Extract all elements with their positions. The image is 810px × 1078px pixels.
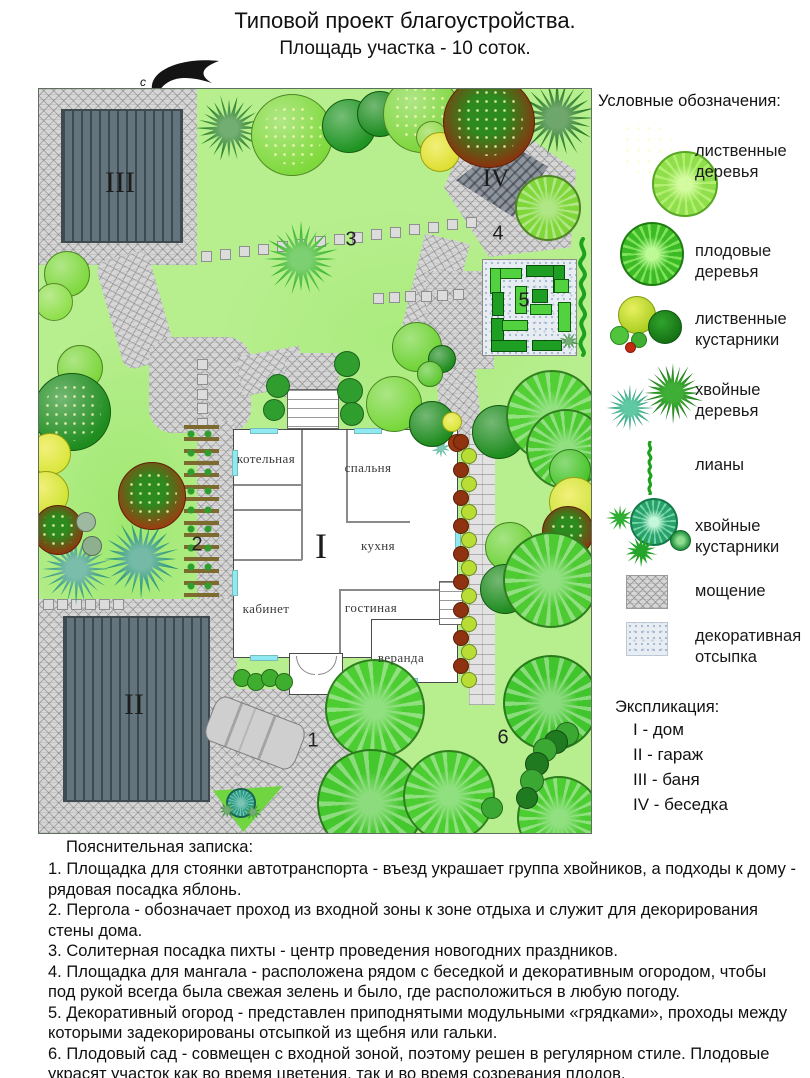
- legend-row-gravel: декоративная отсыпка: [598, 616, 810, 674]
- yellow-shrub: [38, 433, 71, 475]
- page-title: Типовой проект благоустройства.: [0, 8, 810, 34]
- explication: Экспликация: I - дом II - гараж III - ба…: [615, 698, 810, 817]
- conifer-shrub-icon: [670, 530, 691, 551]
- interior-wall: [234, 484, 302, 486]
- compass-label: с: [140, 75, 146, 89]
- label-living-room: гостиная: [345, 600, 397, 616]
- garden-bed: [532, 340, 562, 351]
- label-fir: 3: [345, 229, 356, 252]
- legend-row-deciduous-trees: лиственные деревья: [598, 113, 810, 203]
- deciduous-tree: [549, 449, 591, 491]
- label-kitchen: кухня: [361, 538, 395, 554]
- interior-wall: [339, 589, 341, 657]
- foliage-texture: [393, 88, 451, 143]
- deciduous-tree: [38, 283, 73, 321]
- garden-bed: [530, 304, 552, 315]
- fruit-tree-icon: [620, 222, 684, 286]
- legend-label: плодовые деревья: [695, 241, 810, 283]
- label-parking: 1: [307, 730, 318, 753]
- note-item: 6. Плодовый сад - совмещен с входной зон…: [48, 1044, 796, 1078]
- legend-label: хвойные кустарники: [695, 516, 810, 558]
- legend-label: лианы: [695, 455, 810, 476]
- door-swing: [318, 656, 337, 675]
- liana-icon: [640, 441, 660, 495]
- note-item: 1. Площадка для стоянки автотранспорта -…: [48, 859, 796, 900]
- door-swing: [296, 656, 315, 675]
- yellow-shrub: [38, 471, 69, 517]
- conifer-tree: [263, 221, 339, 297]
- shrub: [340, 402, 364, 426]
- garden-bed: [491, 340, 527, 352]
- interior-wall: [234, 559, 302, 561]
- garden-bed: [502, 320, 528, 331]
- interior-wall: [346, 430, 348, 522]
- stepping-stone: [315, 236, 326, 247]
- note-item: 5. Декоративный огород - представлен при…: [48, 1003, 796, 1044]
- shrub: [76, 512, 96, 532]
- note-item: 2. Пергола - обозначает проход из входно…: [48, 900, 796, 941]
- window: [250, 655, 278, 661]
- window: [354, 428, 382, 434]
- interior-wall: [234, 509, 302, 511]
- conifer-tree: [101, 519, 181, 599]
- fruit-tree: [403, 750, 495, 834]
- deciduous-tree: [357, 91, 403, 137]
- shrub-icon: [610, 326, 629, 345]
- label-bedroom: спальня: [345, 460, 392, 476]
- legend: Условные обозначения: лиственные деревья…: [598, 88, 810, 676]
- deciduous-tree: [251, 94, 333, 176]
- fruit-tree: [503, 655, 592, 751]
- label-bbq-area: 4: [492, 223, 503, 246]
- label-pergola: 2: [191, 534, 202, 557]
- foliage-texture: [127, 471, 177, 521]
- legend-row-paving: мощение: [598, 573, 810, 617]
- window: [390, 678, 418, 684]
- interior-wall: [301, 430, 303, 560]
- legend-row-conifer-trees: хвойные деревья: [598, 360, 810, 436]
- foliage-texture: [262, 105, 323, 166]
- legend-label: декоративная отсыпка: [695, 626, 810, 668]
- explication-item: III - баня: [633, 767, 810, 792]
- stepping-stone: [371, 229, 382, 240]
- explication-item: II - гараж: [633, 742, 810, 767]
- gravel-swatch: [626, 622, 668, 656]
- stepping-stone: [428, 222, 439, 233]
- label-house: I: [315, 525, 327, 567]
- explication-item: I - дом: [633, 717, 810, 742]
- note-item: 4. Площадка для мангала - расположена ря…: [48, 962, 796, 1003]
- deciduous-tree: [322, 99, 376, 153]
- window: [250, 428, 278, 434]
- deciduous-tree: [38, 373, 111, 451]
- label-garage: II: [124, 688, 144, 722]
- red-foliage-tree: [38, 505, 83, 555]
- stepping-stone: [258, 244, 269, 255]
- legend-label: хвойные деревья: [695, 380, 810, 422]
- shrub: [263, 399, 285, 421]
- legend-title: Условные обозначения:: [598, 92, 781, 111]
- stepping-stone: [447, 219, 458, 230]
- foliage-texture: [43, 383, 101, 441]
- shrub: [533, 738, 557, 762]
- fruit-tree: [506, 370, 592, 462]
- stepping-stone: [389, 292, 400, 303]
- garden-bed: [492, 292, 504, 316]
- garden-bed: [554, 279, 569, 293]
- stone-walk: [469, 429, 495, 705]
- stepping-stone: [390, 227, 401, 238]
- side-steps: [439, 581, 463, 625]
- shrub: [520, 769, 544, 793]
- legend-label: мощение: [695, 581, 810, 602]
- label-bath: III: [105, 166, 135, 200]
- legend-label: лиственные кустарники: [695, 309, 810, 351]
- garden-bed: [558, 302, 571, 332]
- window: [232, 570, 238, 596]
- legend-row-conifer-shrubs: хвойные кустарники: [598, 496, 810, 572]
- stepping-stone: [201, 251, 212, 262]
- red-foliage-tree: [542, 506, 592, 558]
- title-block: Типовой проект благоустройства. Площадь …: [0, 8, 810, 60]
- landscape-plan-page: Типовой проект благоустройства. Площадь …: [0, 0, 810, 1078]
- pergola: [184, 425, 219, 597]
- window: [455, 520, 461, 548]
- explication-title: Экспликация:: [615, 698, 810, 717]
- shrub: [516, 787, 538, 809]
- stepping-stone: [220, 249, 231, 260]
- shrub: [337, 378, 363, 404]
- foliage-texture: [549, 513, 587, 551]
- stepping-stone: [296, 239, 307, 250]
- yellow-shrub: [549, 477, 592, 527]
- conifer-tree: [195, 94, 263, 162]
- label-boiler-room: котельная: [237, 451, 295, 467]
- label-orchard: 6: [497, 727, 508, 750]
- stepping-stone: [239, 246, 250, 257]
- conifer-tree: [40, 533, 112, 605]
- liana-plant: [575, 237, 591, 357]
- legend-row-lianas: лианы: [598, 438, 810, 498]
- porch-steps: [287, 389, 339, 429]
- stepping-stone: [409, 224, 420, 235]
- fruit-tree: [517, 776, 592, 834]
- notes-title: Пояснительная записка:: [66, 838, 796, 857]
- red-shrub-icon: [625, 342, 636, 353]
- deciduous-tree: [57, 345, 103, 391]
- stepping-stone: [334, 234, 345, 245]
- shrub: [261, 669, 279, 687]
- foliage-texture: [40, 512, 77, 549]
- explication-item: IV - беседка: [633, 792, 810, 817]
- deciduous-tree: [366, 376, 422, 432]
- legend-label: лиственные деревья: [695, 141, 810, 183]
- paving-swatch: [626, 575, 668, 609]
- shrub: [544, 730, 568, 754]
- rear-porch: [289, 653, 343, 695]
- shrub: [82, 536, 102, 556]
- shrub: [481, 797, 503, 819]
- interior-wall: [346, 521, 410, 523]
- red-foliage-tree: [118, 462, 186, 530]
- garden-bed: [490, 268, 501, 294]
- shrub-icon: [648, 310, 682, 344]
- legend-row-deciduous-shrubs: лиственные кустарники: [598, 288, 810, 358]
- deciduous-tree: [416, 121, 448, 153]
- garden-bed: [532, 289, 548, 303]
- explanatory-notes: Пояснительная записка: 1. Площадка для с…: [48, 838, 796, 1078]
- stepping-stone: [277, 241, 288, 252]
- fruit-tree: [526, 409, 592, 489]
- shrub: [525, 752, 549, 776]
- shrub: [555, 722, 579, 746]
- label-kitchen-garden: 5: [518, 290, 529, 313]
- label-veranda: веранда: [378, 650, 424, 666]
- legend-row-fruit-trees: плодовые деревья: [598, 218, 810, 288]
- stepping-stone: [373, 293, 384, 304]
- conifer-tree-icon: [606, 384, 654, 432]
- label-study: кабинет: [243, 601, 290, 617]
- label-gazebo: IV: [483, 165, 509, 193]
- paving-entry-court: [149, 337, 251, 433]
- site-plan: I II III IV 1 2 3 4 5 6 котельная спальн…: [38, 88, 592, 834]
- deciduous-tree: [383, 88, 461, 153]
- fruit-tree: [503, 532, 592, 628]
- note-item: 3. Солитерная посадка пихты - центр пров…: [48, 941, 796, 962]
